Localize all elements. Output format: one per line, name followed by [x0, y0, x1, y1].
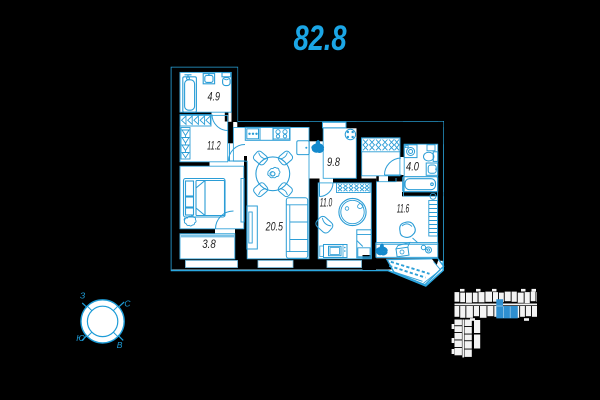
svg-text:3.8: 3.8 — [202, 239, 216, 251]
svg-text:20.5: 20.5 — [265, 221, 284, 233]
svg-text:С: С — [124, 299, 131, 309]
svg-text:82.8: 82.8 — [293, 19, 347, 58]
svg-text:11.6: 11.6 — [397, 203, 410, 215]
svg-text:9.8: 9.8 — [327, 157, 340, 169]
svg-text:11.2: 11.2 — [207, 141, 221, 153]
svg-text:4.0: 4.0 — [406, 161, 419, 173]
svg-text:В: В — [117, 340, 123, 350]
svg-text:4.9: 4.9 — [208, 91, 221, 103]
svg-text:Ю: Ю — [76, 333, 85, 343]
svg-text:З: З — [80, 291, 86, 301]
svg-text:11.0: 11.0 — [320, 197, 333, 209]
